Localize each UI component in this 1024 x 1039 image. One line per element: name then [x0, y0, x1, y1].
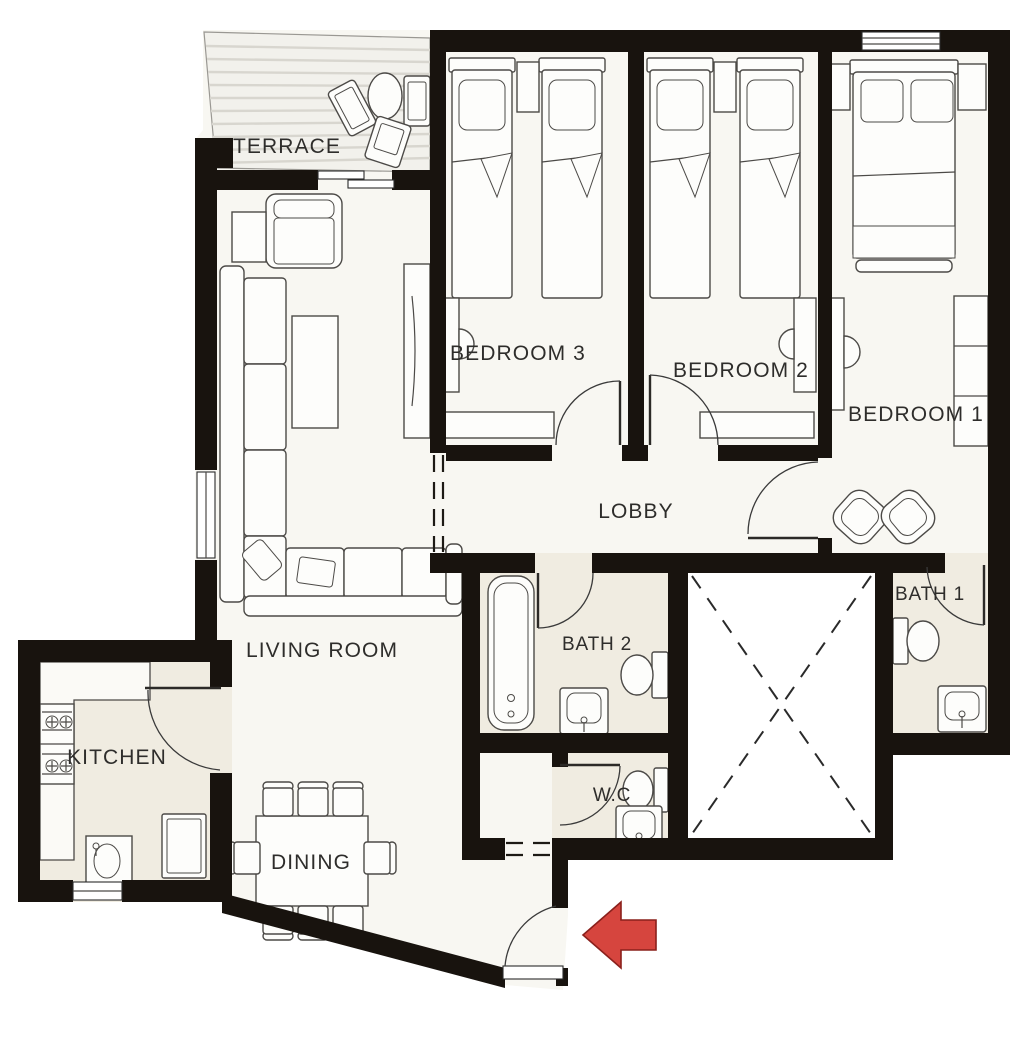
- single-bed-icon: [647, 58, 713, 298]
- label-terrace: TERRACE: [233, 135, 341, 158]
- chair-icon: [364, 842, 396, 874]
- chair-icon: [228, 842, 260, 874]
- sink-icon: [938, 686, 986, 732]
- outdoor-table-icon: [368, 73, 402, 119]
- dresser-icon: [440, 412, 554, 438]
- window-icon: [862, 32, 940, 50]
- window-icon: [73, 882, 122, 900]
- entrance-arrow-icon: [583, 902, 656, 968]
- label-bedroom2: BEDROOM 2: [673, 359, 809, 382]
- label-bath1: BATH 1: [895, 584, 965, 605]
- single-bed-icon: [737, 58, 803, 298]
- armchair-icon: [266, 194, 342, 268]
- fridge-icon: [162, 814, 206, 878]
- label-wc: W.C: [593, 785, 631, 806]
- label-bedroom1: BEDROOM 1: [848, 403, 984, 426]
- label-living: LIVING ROOM: [246, 639, 398, 662]
- tv-console-icon: [404, 264, 430, 438]
- chair-icon: [333, 782, 363, 816]
- double-bed-icon: [850, 60, 958, 272]
- nightstand-icon: [958, 64, 986, 110]
- single-bed-icon: [449, 58, 515, 298]
- coffee-table-icon: [292, 316, 338, 428]
- nightstand-icon: [714, 62, 736, 112]
- stove-icon: [40, 704, 74, 784]
- floor-plan: TERRACE BEDROOM 3 BEDROOM 2 BEDROOM 1 LO…: [0, 0, 1024, 1039]
- kitchen-sink-icon: [86, 836, 132, 884]
- chair-icon: [298, 782, 328, 816]
- toilet-icon: [621, 652, 668, 698]
- toilet-icon: [893, 618, 939, 664]
- bathtub-icon: [488, 576, 534, 730]
- label-bath2: BATH 2: [562, 634, 632, 655]
- sink-icon: [560, 688, 608, 734]
- outdoor-chair-icon: [404, 76, 430, 126]
- nightstand-icon: [517, 62, 539, 112]
- window-icon: [197, 472, 215, 558]
- side-table-icon: [232, 212, 266, 262]
- label-lobby: LOBBY: [598, 500, 674, 523]
- label-kitchen: KITCHEN: [67, 746, 167, 769]
- floor-plan-page: TERRACE BEDROOM 3 BEDROOM 2 BEDROOM 1 LO…: [0, 0, 1024, 1039]
- label-dining: DINING: [271, 851, 351, 874]
- chair-icon: [263, 782, 293, 816]
- single-bed-icon: [539, 58, 605, 298]
- label-bedroom3: BEDROOM 3: [450, 342, 586, 365]
